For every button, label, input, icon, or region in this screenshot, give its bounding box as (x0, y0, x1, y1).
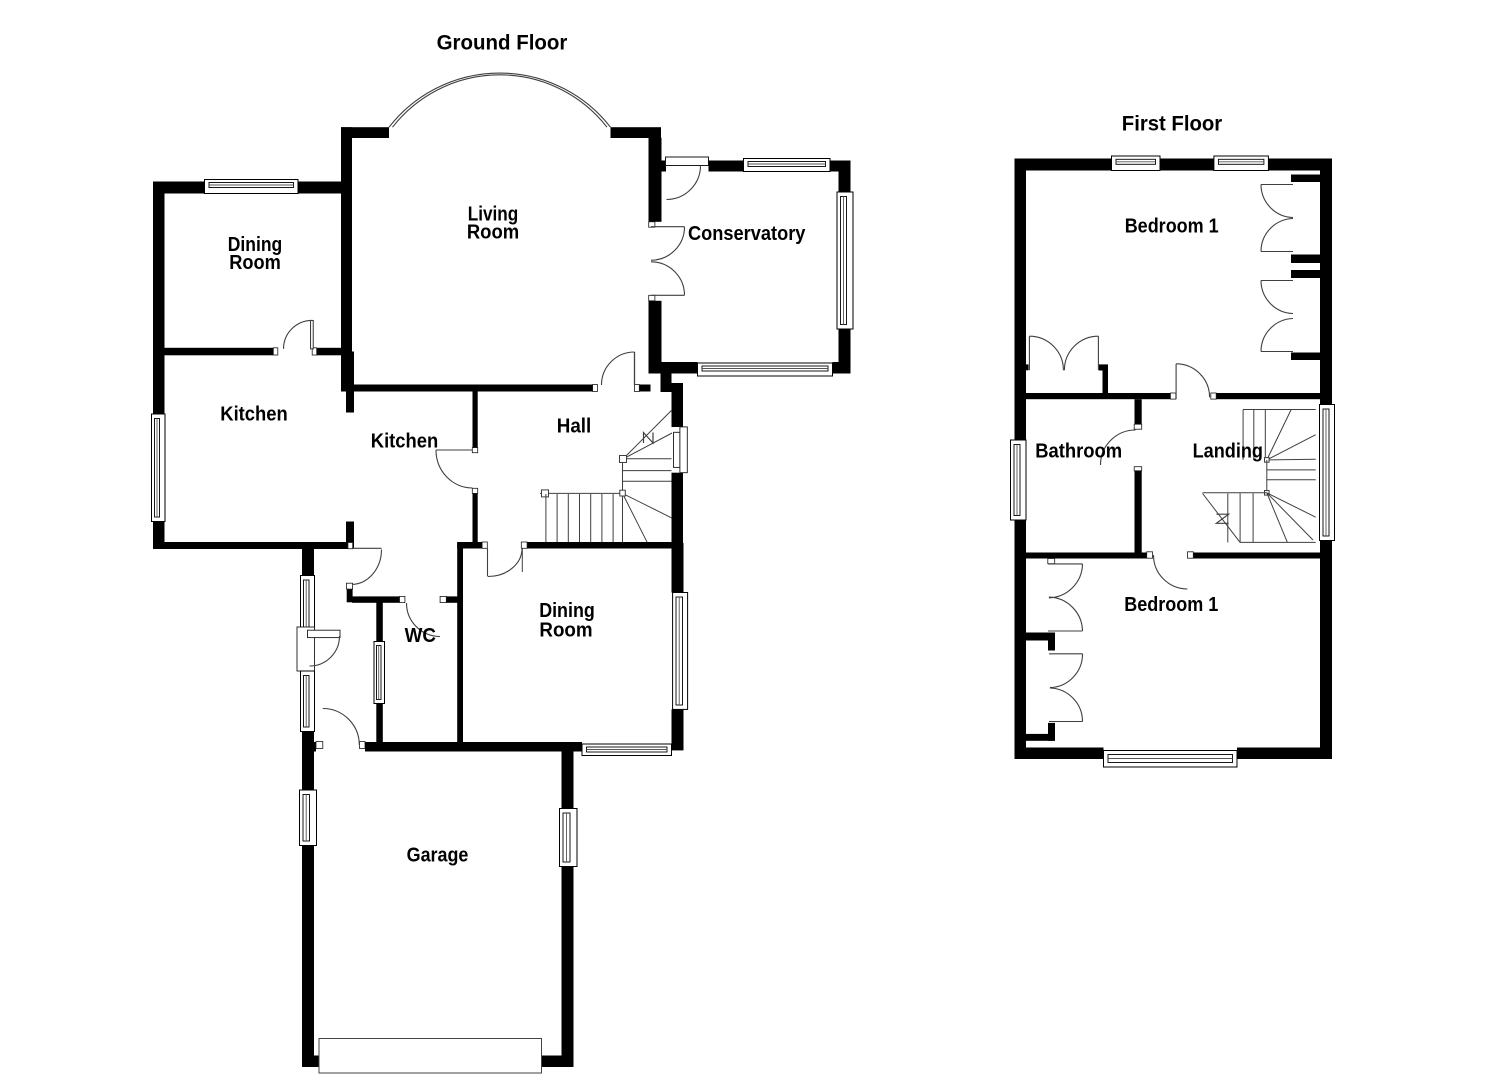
svg-text:Dining: Dining (539, 600, 595, 622)
svg-text:First Floor: First Floor (1122, 112, 1223, 136)
svg-text:Bedroom 1: Bedroom 1 (1124, 594, 1218, 616)
svg-text:Kitchen: Kitchen (371, 431, 438, 453)
svg-text:Kitchen: Kitchen (220, 404, 287, 426)
svg-text:Room: Room (229, 252, 281, 274)
svg-text:Conservatory: Conservatory (688, 223, 806, 245)
svg-text:Bedroom 1: Bedroom 1 (1125, 216, 1219, 238)
svg-text:WC: WC (405, 625, 436, 647)
svg-text:Garage: Garage (407, 845, 469, 867)
svg-text:Room: Room (539, 620, 592, 642)
svg-text:Landing: Landing (1193, 441, 1263, 463)
svg-text:Hall: Hall (557, 416, 592, 438)
svg-text:Bathroom: Bathroom (1035, 441, 1122, 463)
svg-text:Room: Room (467, 222, 519, 244)
svg-text:Ground Floor: Ground Floor (437, 31, 568, 55)
